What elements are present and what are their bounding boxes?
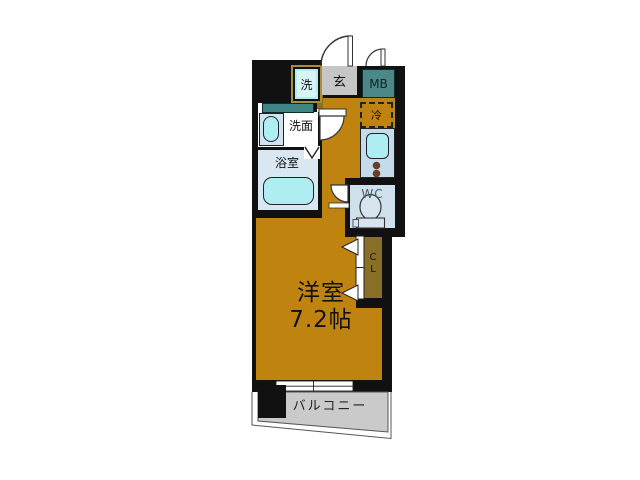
bathroom-label: 浴室 xyxy=(268,155,306,171)
entrance-area: 玄 xyxy=(322,66,357,95)
meter-box-door-leaf xyxy=(381,49,385,66)
main-room-label: 洋室 7.2帖 xyxy=(276,278,366,336)
wc-label: WC xyxy=(355,187,390,201)
wall-hall-wet xyxy=(318,112,322,215)
main-room-name: 洋室 xyxy=(297,280,345,307)
kitchen-sink xyxy=(366,133,389,159)
laundry-box: 洗 xyxy=(293,67,320,101)
wall-right-lower xyxy=(382,237,392,392)
washroom-sink xyxy=(263,116,279,142)
wall-left-upper xyxy=(252,103,258,218)
refrigerator-label: 冷 xyxy=(360,104,393,126)
laundry-counter-strip xyxy=(262,103,314,113)
meter-box-door-arc xyxy=(366,49,383,66)
entrance-door-arc xyxy=(321,36,351,66)
closet-label-l: L xyxy=(370,264,376,276)
entrance-label: 玄 xyxy=(333,71,346,90)
wall-wc-top xyxy=(345,178,405,185)
closet-label: C L xyxy=(364,250,382,278)
wall-left-lower xyxy=(252,218,256,382)
balcony-pillar xyxy=(258,385,286,418)
meter-box: MB xyxy=(362,69,395,98)
balcony-label: バルコニー xyxy=(290,399,370,414)
wall-bathroom-bottom xyxy=(252,210,322,218)
floor-plan: 玄 洗 MB xyxy=(0,0,640,480)
wall-wc-bottom xyxy=(345,228,405,237)
closet-label-c: C xyxy=(370,252,377,264)
bathtub xyxy=(263,177,314,205)
meter-box-label: MB xyxy=(369,77,388,91)
washroom-label: 洗面 xyxy=(284,118,318,134)
wall-washroom-bathroom xyxy=(258,147,318,150)
wall-right-upper xyxy=(395,66,405,237)
main-room-size: 7.2帖 xyxy=(289,307,353,334)
entrance-door-leaf xyxy=(348,36,353,66)
laundry-label: 洗 xyxy=(300,76,312,93)
